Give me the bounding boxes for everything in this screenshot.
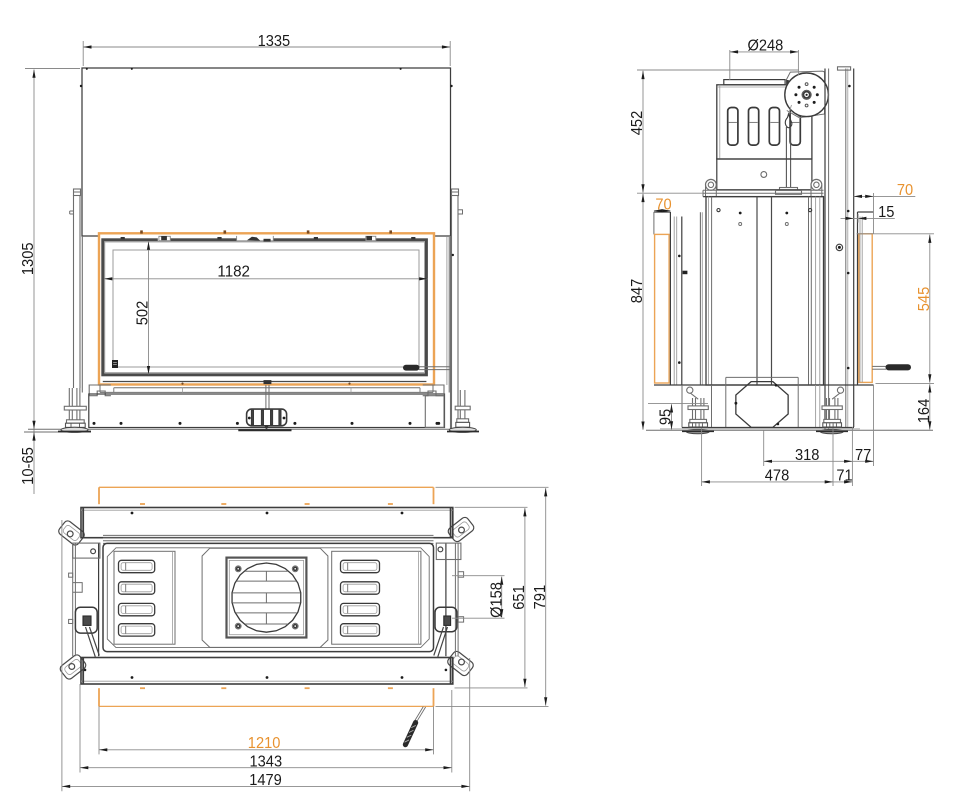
svg-text:77: 77 — [855, 447, 871, 464]
svg-text:1210: 1210 — [248, 735, 281, 752]
svg-text:651: 651 — [511, 585, 528, 610]
svg-text:1335: 1335 — [258, 33, 291, 50]
svg-text:70: 70 — [897, 182, 913, 199]
svg-text:10-65: 10-65 — [20, 447, 37, 485]
svg-text:1305: 1305 — [20, 242, 37, 275]
svg-text:1343: 1343 — [250, 753, 283, 770]
svg-text:Ø248: Ø248 — [748, 37, 784, 54]
svg-text:15: 15 — [878, 204, 894, 221]
svg-text:502: 502 — [135, 301, 152, 326]
svg-text:71: 71 — [836, 468, 852, 485]
svg-text:Ø158: Ø158 — [488, 582, 505, 618]
svg-text:545: 545 — [916, 287, 933, 312]
svg-text:1182: 1182 — [217, 264, 250, 281]
svg-text:95: 95 — [657, 409, 674, 425]
svg-text:318: 318 — [795, 447, 820, 464]
svg-text:791: 791 — [532, 585, 549, 610]
svg-text:164: 164 — [916, 399, 933, 424]
svg-text:1479: 1479 — [249, 772, 282, 789]
svg-text:478: 478 — [765, 468, 790, 485]
svg-text:847: 847 — [629, 279, 646, 304]
svg-text:452: 452 — [629, 111, 646, 136]
svg-text:70: 70 — [655, 196, 671, 213]
